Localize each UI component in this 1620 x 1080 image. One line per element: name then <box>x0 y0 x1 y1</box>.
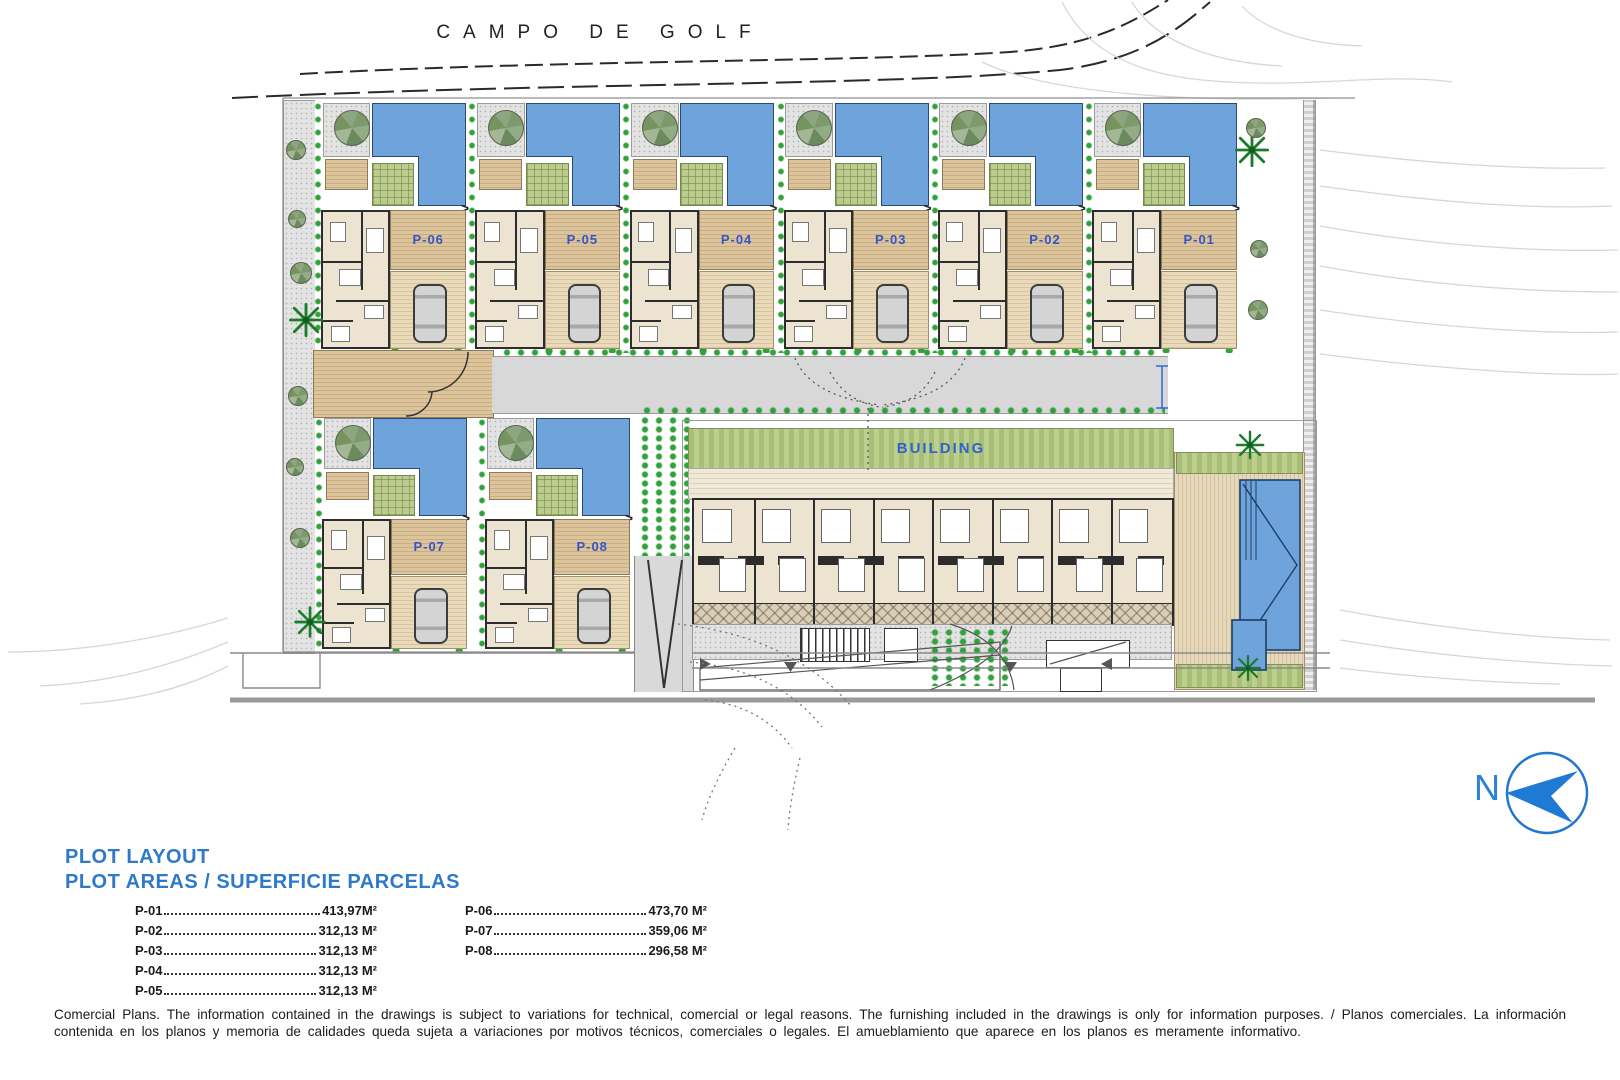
paved-garden <box>631 103 679 157</box>
tree <box>335 425 371 461</box>
villa-floorplan <box>630 210 699 349</box>
villa-terrace: P-01 <box>1161 210 1236 269</box>
private-pool <box>727 156 775 207</box>
plot-area-row: P-01413,97M² <box>135 903 377 918</box>
paved-garden <box>939 103 987 157</box>
villa-terrace: P-02 <box>1007 210 1082 269</box>
deck-strip <box>1096 159 1139 189</box>
parking-terrace <box>554 576 629 649</box>
grass-patch <box>989 163 1031 206</box>
private-pool <box>989 103 1083 157</box>
plot-area-row: P-08296,58 M² <box>465 943 707 958</box>
car <box>577 588 610 643</box>
plot-id: P-06 <box>465 903 492 918</box>
plot-label: P-06 <box>412 232 443 247</box>
private-pool <box>372 103 466 157</box>
villa-plot-p-03: > P-03 <box>778 100 932 353</box>
grass-patch <box>835 163 877 206</box>
leader-dots <box>164 913 320 915</box>
plot-area-row: P-03312,13 M² <box>135 943 377 958</box>
apartment-unit <box>932 500 994 624</box>
grass-patch <box>536 475 578 515</box>
villa-terrace: P-05 <box>545 210 620 269</box>
tree <box>288 210 306 228</box>
driveway-hedge-top <box>500 348 1160 357</box>
villa-terrace: P-07 <box>391 519 466 575</box>
plot-label: P-05 <box>567 232 598 247</box>
plot-area-row: P-05312,13 M² <box>135 983 377 998</box>
leader-dots <box>494 913 646 915</box>
plot-id: P-07 <box>465 923 492 938</box>
left-garden-strip <box>283 100 315 654</box>
tree <box>951 110 987 146</box>
apartment-unit <box>754 500 816 624</box>
villa-plot-p-02: > P-02 <box>932 100 1086 353</box>
parking-terrace <box>391 576 466 649</box>
villa-plot-p-01: > P-01 <box>1086 100 1240 353</box>
car <box>1184 284 1217 343</box>
deck-strip <box>479 159 522 189</box>
tree <box>498 425 534 461</box>
tree <box>1105 110 1141 146</box>
villa-floorplan <box>1092 210 1161 349</box>
grass-patch <box>1143 163 1185 206</box>
private-pool <box>419 468 467 515</box>
plot-area-row: P-04312,13 M² <box>135 963 377 978</box>
paved-garden <box>1094 103 1142 157</box>
private-pool <box>680 103 774 157</box>
private-pool <box>1189 156 1237 207</box>
leader-dots <box>164 973 316 975</box>
north-compass <box>1506 753 1587 833</box>
plot-id: P-01 <box>135 903 162 918</box>
car <box>722 284 755 343</box>
deck-strip <box>325 159 368 189</box>
private-pool <box>536 418 630 469</box>
garden-patch <box>928 628 1012 686</box>
plot-area-value: 312,13 M² <box>318 963 377 978</box>
deck-strip <box>633 159 676 189</box>
leader-dots <box>164 953 316 955</box>
apartment-unit <box>1051 500 1113 624</box>
tree <box>796 110 832 146</box>
leader-dots <box>494 933 646 935</box>
plot-area-value: 312,13 M² <box>318 983 377 998</box>
plot-label: P-03 <box>875 232 906 247</box>
tree <box>642 110 678 146</box>
deck-strip <box>942 159 985 189</box>
grass-patch <box>373 475 415 515</box>
apartment-unit <box>873 500 935 624</box>
leader-dots <box>164 993 316 995</box>
plot-area-value: 312,13 M² <box>318 943 377 958</box>
disclaimer-text: Comercial Plans. The information contain… <box>54 1006 1566 1040</box>
plot-area-row: P-07359,06 M² <box>465 923 707 938</box>
villa-plot-p-05: > P-05 <box>469 100 623 353</box>
plot-id: P-08 <box>465 943 492 958</box>
plot-label: P-02 <box>1029 232 1060 247</box>
plot-id: P-05 <box>135 983 162 998</box>
car <box>1030 284 1063 343</box>
deck-strip <box>326 472 369 500</box>
stairs <box>800 628 870 662</box>
villa-floorplan <box>322 519 391 649</box>
apartment-unit <box>992 500 1054 624</box>
villa-plot-p-08: > P-08 <box>479 416 633 653</box>
paved-garden <box>324 418 372 469</box>
parking-terrace <box>699 271 774 349</box>
communal-pool-deck <box>1174 452 1305 690</box>
leader-dots <box>494 953 646 955</box>
paved-garden <box>487 418 535 469</box>
plot-label: P-04 <box>721 232 752 247</box>
paved-garden <box>477 103 525 157</box>
tree <box>1248 300 1268 320</box>
villa-terrace: P-04 <box>699 210 774 269</box>
tree <box>290 262 312 284</box>
villa-terrace: P-03 <box>853 210 928 269</box>
car <box>876 284 909 343</box>
grass-patch <box>680 163 722 206</box>
car <box>568 284 601 343</box>
tree <box>488 110 524 146</box>
plot-area-value: 312,13 M² <box>318 923 377 938</box>
tree <box>290 528 310 548</box>
utility-box <box>1046 640 1130 668</box>
parking-terrace <box>1161 271 1236 349</box>
plot-area-value: 413,97M² <box>322 903 377 918</box>
apartment-block <box>692 498 1174 626</box>
campo-de-golf-label: CAMPO DE GOLF <box>0 22 1200 44</box>
apartment-unit <box>1111 500 1171 624</box>
building-label: BUILDING <box>866 440 1016 457</box>
villa-floorplan <box>321 210 390 349</box>
plot-area-value: 359,06 M² <box>648 923 707 938</box>
tree <box>286 140 306 160</box>
tree <box>1246 118 1266 138</box>
parking-terrace <box>390 271 465 349</box>
plot-area-row: P-02312,13 M² <box>135 923 377 938</box>
private-pool <box>1143 103 1237 157</box>
north-label: N <box>1474 770 1500 806</box>
parking-terrace <box>1007 271 1082 349</box>
central-deck <box>313 350 494 418</box>
villa-plot-p-07: > P-07 <box>316 416 470 653</box>
apartment-unit <box>813 500 875 624</box>
plot-area-row: P-06473,70 M² <box>465 903 707 918</box>
tree <box>286 458 304 476</box>
private-pool <box>582 468 630 515</box>
plot-area-value: 296,58 M² <box>648 943 707 958</box>
villa-floorplan <box>475 210 544 349</box>
parking-terrace <box>545 271 620 349</box>
pool-hedge-bottom <box>1176 664 1303 688</box>
utility-box-small <box>1060 668 1102 692</box>
pool-hedge-top <box>1176 452 1303 474</box>
villa-floorplan <box>938 210 1007 349</box>
legend-title-plot-layout: PLOT LAYOUT <box>65 846 210 869</box>
tree <box>334 110 370 146</box>
plot-label: P-07 <box>413 539 444 554</box>
paved-garden <box>323 103 371 157</box>
private-pool <box>1035 156 1083 207</box>
villa-terrace: P-06 <box>390 210 465 269</box>
parking-terrace <box>853 271 928 349</box>
apartment-unit <box>694 500 756 624</box>
villa-plot-p-06: > P-06 <box>315 100 469 353</box>
car <box>413 284 446 343</box>
private-pool <box>835 103 929 157</box>
plot-id: P-03 <box>135 943 162 958</box>
plot-label: P-01 <box>1183 232 1214 247</box>
private-pool <box>373 418 467 469</box>
driveway-hedge-bottom <box>640 406 1165 415</box>
paved-garden <box>785 103 833 157</box>
building-terrace-band <box>688 468 1174 500</box>
private-pool <box>418 156 466 207</box>
tree <box>288 386 308 406</box>
plot-id: P-02 <box>135 923 162 938</box>
grass-patch <box>526 163 568 206</box>
villa-floorplan <box>784 210 853 349</box>
elevator <box>884 628 918 662</box>
private-pool <box>881 156 929 207</box>
tree <box>1250 240 1268 258</box>
car <box>414 588 447 643</box>
leader-dots <box>164 933 316 935</box>
plot-id: P-04 <box>135 963 162 978</box>
plot-area-value: 473,70 M² <box>648 903 707 918</box>
plot-label: P-08 <box>576 539 607 554</box>
villa-terrace: P-08 <box>554 519 629 575</box>
villa-floorplan <box>485 519 554 649</box>
private-pool <box>526 103 620 157</box>
site-plan-page: CAMPO DE GOLF > P-06 <box>0 0 1620 1080</box>
deck-strip <box>489 472 532 500</box>
villa-plot-p-04: > P-04 <box>623 100 777 353</box>
legend-title-plot-areas: PLOT AREAS / SUPERFICIE PARCELAS <box>65 871 460 894</box>
right-garden-strip <box>1240 100 1306 358</box>
grass-patch <box>372 163 414 206</box>
private-pool <box>572 156 620 207</box>
deck-strip <box>788 159 831 189</box>
